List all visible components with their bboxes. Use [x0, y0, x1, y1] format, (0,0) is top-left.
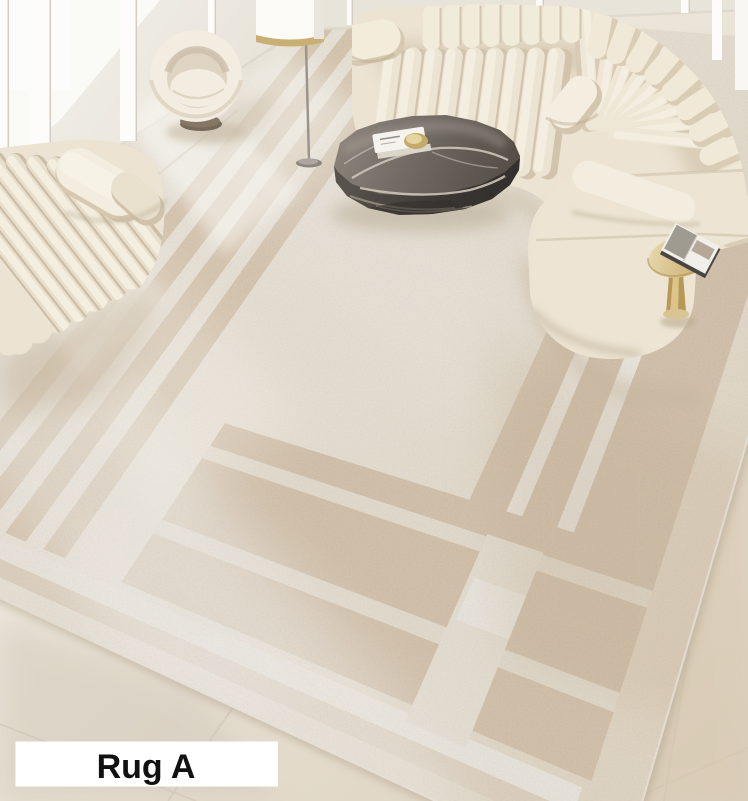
- svg-text:Rug A: Rug A: [97, 748, 196, 786]
